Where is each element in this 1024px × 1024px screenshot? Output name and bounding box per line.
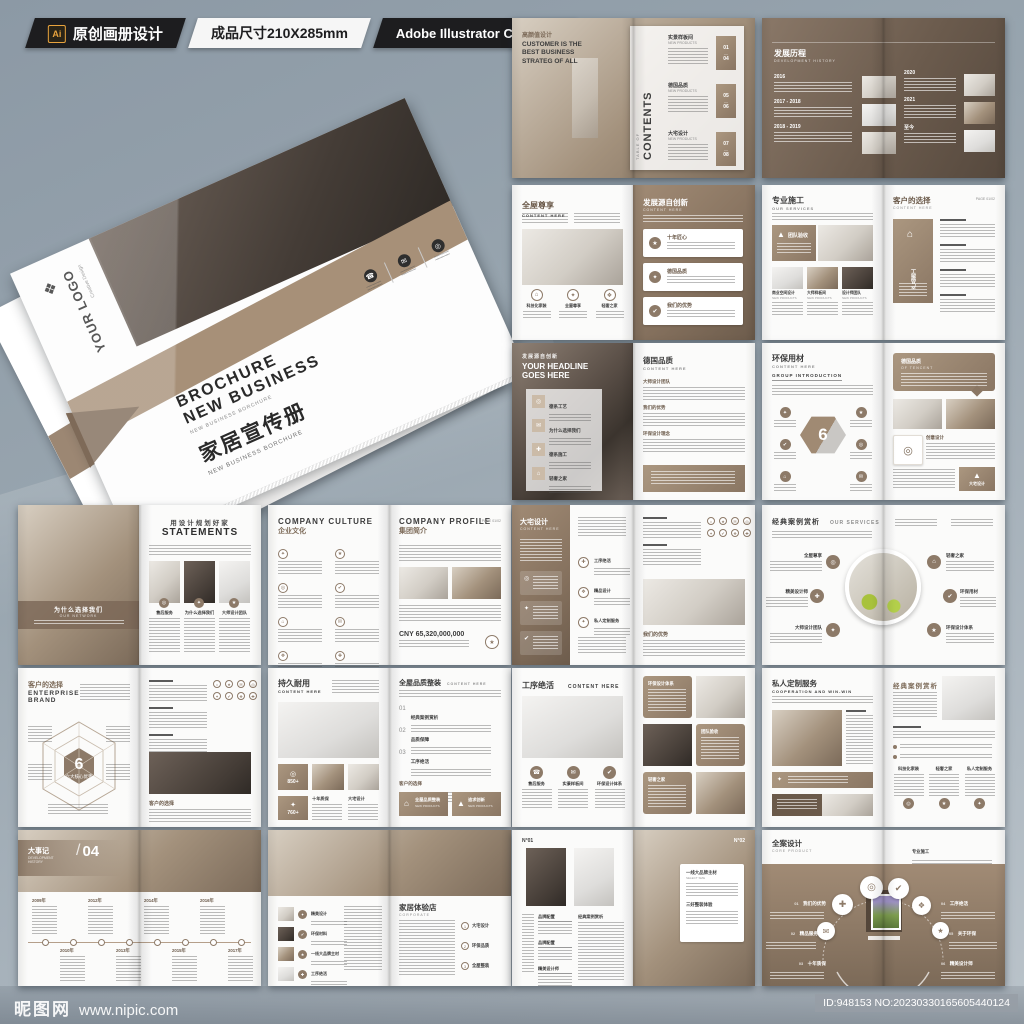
timeline-node: [154, 939, 161, 946]
text-placeholder: [850, 420, 872, 429]
icon-grid: ⌂ ★ ✉ ◎ ✦ ✔ ❖ ✚: [213, 680, 251, 700]
photo: [452, 567, 501, 599]
spread-history: 发展历程 DEVELOPMENT HISTORY 2016 2017 - 201…: [762, 18, 1005, 178]
title-en: CONTENT HERE: [568, 684, 619, 690]
heading-bar: [940, 244, 966, 246]
title-cn: 家居体验店: [399, 902, 437, 913]
mid-item: ✦ 私人定制服务: [578, 609, 630, 635]
text-placeholder: [668, 96, 708, 112]
text-placeholder: [904, 78, 956, 92]
title-en: OUR SERVICES: [772, 206, 814, 211]
size-label: 成品尺寸210X285mm: [211, 23, 348, 43]
timeline-left: 2016 2017 - 2018 2018 - 2019: [774, 74, 858, 144]
text-placeholder: [149, 545, 251, 555]
photo: [964, 74, 995, 96]
card-title: 德国品质: [667, 268, 687, 275]
mail-icon: ✉: [817, 922, 835, 940]
photo: [348, 764, 379, 790]
item-label: 精品设计: [594, 588, 611, 593]
left-title: 环保用材 CONTENT HERE: [772, 353, 816, 369]
heading-bar: [893, 726, 921, 728]
col-label: 私人定制服务: [967, 766, 992, 772]
hex-item: ✉: [850, 471, 872, 493]
text-column: 品牌配置 品牌配置 精美设计师: [538, 914, 572, 988]
section-heading: 我们的优势: [643, 405, 745, 411]
text-placeholder: [574, 213, 620, 225]
feature-label: 轻奢之家: [602, 303, 618, 309]
icon: ✔: [225, 692, 233, 700]
number-badge: 1: [461, 922, 469, 930]
rocket-card: ▲ 大宅设计: [959, 467, 995, 491]
heading-bar: [149, 707, 173, 709]
photo: [278, 702, 379, 758]
text-placeholder: [399, 920, 455, 976]
target-icon: ◎: [159, 598, 169, 608]
label-title: 我们的优势: [803, 901, 826, 906]
text-placeholder: [899, 283, 927, 297]
photo: [312, 764, 344, 790]
col-head: 品牌配置: [538, 914, 572, 922]
text-placeholder: [522, 789, 552, 809]
text-placeholder: [578, 517, 626, 537]
card-sub: SELECT SIZE: [686, 876, 738, 880]
text-placeholder: [172, 956, 197, 982]
left-title: 工序绝活 CONTENT HERE: [522, 680, 619, 691]
big-number: 04: [82, 843, 99, 860]
timeline-entry: 2014年: [144, 898, 170, 936]
title-cn: 发展源自创新: [643, 197, 688, 208]
caption: 大师设计团队: [219, 610, 250, 616]
console-table: [868, 936, 900, 940]
overlay-card: 一线大品牌主材 SELECT SIZE 三好整装体验: [680, 864, 744, 942]
text-placeholder: [842, 302, 873, 316]
text-placeholder: [926, 443, 995, 461]
text-placeholder: [399, 605, 501, 623]
text-placeholder: [48, 804, 108, 816]
hex-item: ✔: [774, 439, 796, 461]
photo: [149, 752, 251, 794]
label-no: 04: [941, 902, 945, 906]
text-placeholder: [149, 712, 207, 728]
label-no: 01: [794, 902, 798, 906]
item-title: 品质保障: [411, 737, 429, 742]
right-title: 客户的选择 CONTENT HERE: [893, 195, 933, 210]
label: 精美设计师: [766, 589, 808, 595]
text-placeholder: [344, 906, 382, 972]
bubble: 团队验收: [696, 724, 745, 766]
coin-icon: ★: [939, 798, 950, 809]
phone-icon: ☎: [530, 766, 543, 779]
headline-line2: GOES HERE: [522, 371, 588, 380]
headline-line1: YOUR HEADLINE: [522, 362, 588, 371]
text-placeholder: [766, 942, 816, 950]
card-sub: NEW PRODUCTS: [468, 804, 493, 808]
text-placeholder: [900, 744, 992, 750]
spark-icon: ✦: [567, 289, 579, 301]
target-icon: ◎: [524, 575, 529, 582]
brown-panel: 大宅设计 CONTENT HERE ◎ ✦ ✔: [512, 505, 570, 665]
label-no: 06: [941, 962, 945, 966]
text-placeholder: [770, 912, 824, 920]
title-cn: 私人定制服务: [772, 678, 852, 689]
label: 环保用材: [960, 589, 1000, 595]
photo: [18, 505, 139, 665]
title-en: COOPERATION AND WIN-WIN: [772, 689, 852, 694]
item-title: 德系工艺: [549, 404, 567, 409]
feature-card: ✔ 我们的优势: [643, 297, 743, 325]
text-placeholder: [28, 726, 52, 742]
site-logo: 昵图网: [14, 995, 71, 1020]
mail-icon: ✉: [856, 471, 867, 482]
text-placeholder: [648, 785, 686, 807]
text-placeholder: [668, 48, 708, 64]
text-placeholder: [965, 774, 995, 796]
text-placeholder: [668, 144, 708, 160]
cover-mockup: ❖ YOUR LOGO Creative Design ☎ ✉ ◎: [0, 55, 510, 515]
heading-bar: [940, 294, 966, 296]
text-placeholder: [895, 519, 937, 527]
title-en2: BRAND: [28, 697, 80, 704]
text-placeholder: [774, 484, 796, 493]
bubble-tail: [971, 385, 982, 396]
photo: [862, 76, 896, 98]
photo-column: ◎ 售后服务: [149, 561, 180, 652]
text-placeholder: [940, 249, 995, 263]
header-size-ribbon: 成品尺寸210X285mm: [188, 18, 371, 48]
label-no: 05: [949, 932, 953, 936]
card-sub: NEW PRODUCTS: [415, 804, 440, 808]
check-icon: ✔: [524, 635, 529, 642]
label-title: 精美设计师: [950, 961, 973, 966]
item-label: 工序绝活: [594, 558, 611, 563]
text-placeholder: [951, 519, 993, 527]
spread-brand: 客户的选择 ENTERPRISE BRAND 6 六大核心优势: [18, 668, 261, 827]
col-head: 精美设计师: [538, 966, 572, 974]
caption: 为什么选择我们: [184, 610, 215, 616]
title-en: STATEMENTS: [149, 527, 251, 538]
target-card: ◎: [893, 435, 923, 465]
mail-icon: ✉: [532, 419, 545, 432]
home-icon: ⌂: [907, 229, 913, 240]
title-en: CONTENT HERE: [447, 682, 487, 686]
target-icon: ◎: [903, 444, 913, 457]
right-title: 用设计规划好家 STATEMENTS: [149, 517, 251, 538]
label-group: 06 精美设计师: [941, 952, 997, 980]
person-icon: ✦: [826, 623, 840, 637]
page-label-1: N°01: [522, 838, 533, 844]
section-sub: NEW PRODUCTS: [668, 89, 716, 93]
year: 至今: [904, 124, 960, 131]
text-placeholder: [643, 549, 701, 565]
hex-item: ★: [850, 407, 872, 429]
section-sub: NEW PRODUCTS: [668, 137, 716, 141]
timeline-node: [70, 939, 77, 946]
text-placeholder: [701, 737, 739, 759]
title-en: CONTENT HERE: [772, 364, 816, 369]
framed-painting: [871, 894, 901, 930]
feature-label: 售后服务: [528, 781, 545, 787]
spread-cases: 经典案例赏析 OUR SERVICES ◎ ✚ ✦ ⌂ ✔ ★ 全屋尊享 精美设…: [762, 505, 1005, 665]
band-title: 为什么选择我们: [54, 605, 103, 614]
bubble-sub: OF TENCENT: [901, 366, 933, 370]
label: 轻奢之家: [946, 553, 998, 559]
diamond-icon: ❖: [604, 289, 616, 301]
thumb-sub: NEW PRODUCTS: [807, 296, 838, 300]
star-icon: ★: [298, 950, 307, 959]
list-item: ✚ 德系施工: [532, 443, 591, 470]
text-placeholder: [278, 595, 322, 609]
history-title: 发展历程 DEVELOPMENT HISTORY: [774, 48, 836, 63]
spread-numbered: N°01 品牌配置 品牌配置 精美设计师 经典案例赏析 N°02 一线大品牌主材…: [512, 830, 755, 986]
text-placeholder: [941, 912, 995, 920]
text-placeholder: [399, 545, 501, 563]
group-label: GROUP INTRODUCTION: [772, 373, 842, 381]
product-card: ▲ 追求创新 NEW PRODUCTS: [452, 792, 501, 816]
bubble: 轻奢之家: [643, 772, 692, 814]
site-url: www.nipic.com: [79, 1002, 178, 1019]
title-en2: HISTORY: [28, 860, 54, 864]
icon: ✦: [707, 529, 715, 537]
spread-milestones: 大事记 DEVELOPMENT HISTORY / 04 2009年 2010年: [18, 830, 261, 986]
stat-tile: ✦ 760+: [278, 796, 308, 820]
revenue-figure: CNY 65,320,000,000: [399, 631, 469, 638]
label: 环保设计体系: [946, 625, 998, 631]
icon: ✚: [249, 692, 257, 700]
advantage-block: 我们的优势: [643, 631, 745, 656]
toc-title-block: TABLE OF CONTENTS: [635, 36, 654, 160]
photo: [807, 267, 838, 289]
photo: [946, 399, 995, 429]
band-sub: OUR NETWORK: [60, 614, 98, 618]
timeline-entry: 2009年: [32, 898, 58, 936]
photo: [278, 967, 294, 981]
spark-icon: ✦: [649, 271, 661, 283]
photo: [772, 267, 803, 289]
star-icon: ★: [335, 549, 345, 559]
card-title-2: 三好整装体验: [686, 902, 738, 908]
item-title: 工序绝活: [411, 759, 429, 764]
label-group: 轻奢之家: [946, 553, 998, 573]
label-group: 03 十年质保: [770, 952, 826, 980]
bubble: 环保设计体系: [643, 676, 692, 718]
label-group: 环保设计体系: [946, 625, 998, 645]
page-range: 07 — 08: [716, 132, 736, 166]
icon: ⌂: [213, 680, 221, 688]
spread-custom: 私人定制服务 COOPERATION AND WIN-WIN ✦ 经典案例赏析: [762, 668, 1005, 827]
page-number: PAGE 01/02: [482, 519, 501, 523]
title-en: CONTENT HERE: [643, 366, 687, 371]
text-placeholder: [643, 215, 743, 223]
check-icon: ✔: [335, 583, 345, 593]
panel-card: ✦: [520, 601, 562, 625]
hex-label: 六大核心优势: [66, 773, 93, 780]
dot-icon: [893, 745, 897, 749]
text-placeholder: [278, 561, 322, 575]
title-en: CORPORATE: [399, 913, 437, 917]
home-icon: ⌂: [278, 617, 288, 627]
title-cn: 客户的选择: [28, 680, 80, 690]
toc-section: 大宅设计 NEW PRODUCTS: [668, 130, 716, 160]
text-placeholder: [901, 373, 987, 386]
header-bar: Ai 原创画册设计 成品尺寸210X285mm Adobe Illustrato…: [30, 18, 573, 48]
text-placeholder: [772, 302, 803, 316]
right-title: 全屋品质整装 CONTENT HERE: [399, 678, 487, 688]
right-title: 德国品质 CONTENT HERE: [643, 355, 687, 371]
text-placeholder: [772, 385, 873, 397]
panel-card: ◎: [520, 571, 562, 595]
feature-card: ✦ 德国品质: [643, 263, 743, 291]
list-label: 全屋整装: [472, 963, 489, 969]
vertical-card: ⌂ 产品施工: [893, 219, 933, 303]
gear-icon: ✚: [298, 970, 307, 979]
spark-icon: ✦: [278, 549, 288, 559]
card-title: 十年匠心: [667, 234, 687, 241]
plus-icon: ✚: [335, 651, 345, 661]
banner-label: 团队验收: [788, 232, 808, 239]
year: 2012年: [88, 898, 114, 904]
heading-bar: [940, 219, 966, 221]
text-placeholder: [594, 628, 630, 635]
icon: ✚: [743, 529, 751, 537]
text-placeholder: [777, 243, 811, 255]
timeline-entry: 2017年: [228, 948, 254, 982]
text-placeholder: [774, 452, 796, 461]
thumb-label: 精美设计: [311, 911, 327, 916]
label-group: 精美设计师: [766, 589, 808, 609]
photo: [278, 907, 294, 921]
title-en: CONTENT HERE: [520, 527, 560, 531]
coin-icon: ✦: [974, 798, 985, 809]
title-cn: 发展历程: [774, 48, 836, 59]
text-placeholder: [116, 956, 141, 982]
shield-icon: ❖: [912, 896, 931, 915]
spread-durable: 持久耐用 CONTENT HERE ◎ 850+ ✦ 760+ 十年质保 大宅设…: [268, 668, 511, 827]
title-cn: 工序绝活: [522, 680, 554, 691]
text-placeholder: [643, 439, 745, 452]
text-placeholder: [643, 522, 701, 538]
logo-diamond-icon: ❖: [38, 275, 63, 300]
photo: [862, 132, 896, 154]
text-placeholder: [595, 789, 625, 809]
tag: 发展源自创新: [522, 353, 558, 360]
year: 2017年: [228, 948, 254, 954]
text-placeholder: [850, 484, 872, 493]
text-placeholder: [893, 731, 995, 740]
list-item: 1 大宅设计: [461, 922, 489, 930]
text-placeholder: [559, 311, 587, 319]
mail-icon: ✉: [567, 766, 580, 779]
page-to: 08: [723, 152, 729, 158]
mail-icon: ✉: [335, 617, 345, 627]
year: 2016: [774, 74, 858, 80]
text-placeholder: [312, 804, 342, 820]
photo: [942, 676, 995, 720]
page-label-2: N°02: [734, 838, 745, 844]
timeline-node: [238, 939, 245, 946]
text-placeholder: [900, 754, 992, 760]
col-head: 品牌配置: [538, 940, 572, 948]
icon: ◎: [743, 517, 751, 525]
spread-core: 全案设计 CORE PRODUCT 专业施工 ✉ ✚ ◎ ✔ ❖ ★ 01 我们…: [762, 830, 1005, 986]
feature-label: 科技化家装: [527, 303, 547, 309]
hex-item: ◎: [850, 439, 872, 461]
bubble-title: 团队验收: [701, 729, 718, 735]
item-title: 经典案例赏析: [411, 715, 439, 720]
text-placeholder: [558, 789, 588, 809]
spark-icon: ✦: [298, 910, 307, 919]
header-original-ribbon: Ai 原创画册设计: [25, 18, 186, 48]
hex-number: 6: [75, 756, 84, 773]
text-placeholder: [399, 690, 501, 699]
title-cn: 集团简介: [399, 526, 491, 536]
stat-value: 760+: [287, 810, 298, 816]
text-placeholder: [533, 636, 558, 650]
text-placeholder: [60, 956, 85, 982]
caption-block: 十年质保: [312, 796, 344, 820]
text-placeholder: [80, 684, 130, 702]
card-text: 创意设计: [926, 435, 995, 461]
feature-label: 环保设计体系: [597, 781, 622, 787]
text-placeholder: [667, 242, 735, 251]
text-placeholder: [228, 956, 253, 982]
heading-bar: [149, 734, 173, 736]
photo: [893, 399, 942, 429]
title-cn: 全屋品质整装: [399, 678, 441, 688]
icon-grid: ⌂ ★ ✉ ◎ ✦ ✔ ❖ ✚: [707, 517, 745, 537]
text-placeholder: [774, 420, 796, 429]
photo: [643, 579, 745, 625]
title-en: CONTENT HERE: [643, 208, 688, 212]
right-title: 家居体验店 CORPORATE: [399, 902, 437, 917]
timeline-node: [210, 939, 217, 946]
text-placeholder: [149, 809, 251, 823]
icon: ❖: [731, 529, 739, 537]
year: 2020: [904, 70, 960, 76]
target-icon: ◎: [826, 555, 840, 569]
panel-card: ✔: [520, 631, 562, 655]
banner: ▲ 团队验收: [772, 225, 816, 261]
text-placeholder: [846, 715, 873, 765]
frosted-panel: ◎ 德系工艺 ✉ 为什么选择我们 ✚ 德系施工 ⌂ 轻奢之家: [526, 389, 602, 491]
text-placeholder: [667, 276, 735, 285]
text-placeholder: [850, 452, 872, 461]
target-icon: ◎: [290, 770, 296, 778]
text-placeholder: [523, 311, 551, 319]
text-placeholder: [348, 804, 378, 820]
text-placeholder: [946, 561, 994, 573]
list-item: 3 全屋整装: [461, 962, 489, 970]
text-placeholder: [533, 576, 558, 590]
heading: 我们的优势: [643, 631, 745, 638]
card-title: 创意设计: [926, 435, 995, 441]
spread-whole-house: 全屋尊享 CONTENT HERE ⌂ 科技化家装 ✦ 全屋尊享 ❖ 轻奢之家: [512, 185, 755, 340]
photo: [268, 830, 511, 896]
text-placeholder: [149, 685, 207, 701]
text-placeholder: [144, 906, 169, 936]
target-icon: ◎: [532, 395, 545, 408]
bullet: [893, 744, 992, 750]
label-group: 05 关于环保: [949, 922, 1001, 950]
coin-icon: ◎: [903, 798, 914, 809]
photo: [862, 104, 896, 126]
gear-icon: ✚: [578, 557, 589, 568]
section-title: 实景样板间: [668, 34, 716, 41]
page-to: 04: [723, 56, 729, 62]
text-column-wide: 经典案例赏析: [578, 914, 624, 980]
text-placeholder: [946, 633, 994, 645]
thumb-label: 一线大品牌主材: [311, 951, 339, 956]
left-title: 私人定制服务 COOPERATION AND WIN-WIN: [772, 678, 852, 694]
